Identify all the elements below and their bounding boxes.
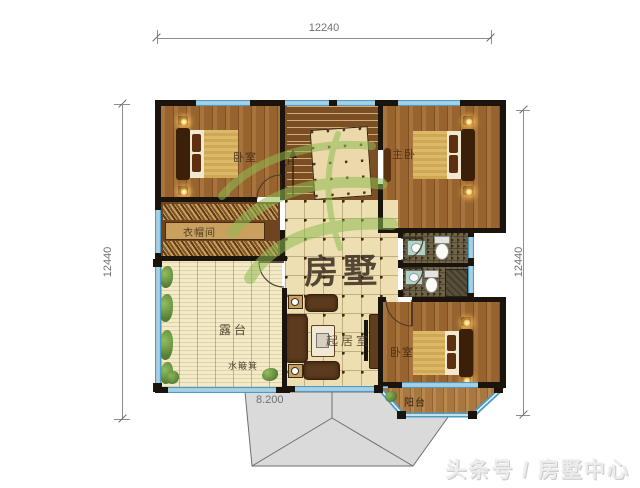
floor-plan-canvas: 12240 12440 12440 8.200 — [0, 0, 640, 488]
outer-wall-left — [155, 100, 161, 210]
dim-line-top — [157, 38, 491, 39]
label-bedroom-tl: 卧室 — [233, 149, 257, 165]
stair-landing — [310, 126, 373, 200]
shower-stall — [445, 269, 468, 297]
toilet-bowl — [425, 277, 438, 293]
dim-top-value: 12240 — [157, 22, 491, 34]
cloakroom-rack-bottom — [163, 241, 278, 256]
outer-wall-right-lower — [500, 297, 506, 388]
wall-bath-divider — [398, 263, 474, 267]
wall-bedroom-tl-bottom — [155, 197, 257, 202]
window-terrace-left — [155, 263, 161, 385]
bed-pillow — [449, 155, 458, 173]
label-water-drain: 水簸箕 — [228, 359, 258, 372]
label-cloakroom: 衣帽间 — [183, 224, 216, 239]
bed-headboard — [176, 128, 190, 180]
watermark-footer: 头条号 / 房墅中心 — [445, 454, 630, 484]
wall-bath-left — [398, 233, 403, 238]
corner-post — [397, 411, 406, 419]
dim-right-value: 12440 — [513, 232, 525, 292]
wall-bath-left — [398, 290, 403, 297]
toilet-bowl — [435, 243, 449, 260]
window-bath-1 — [468, 237, 474, 258]
corner-post — [494, 385, 503, 393]
window-bedroom-br-bottom — [402, 382, 478, 388]
bed-duvet — [413, 331, 445, 375]
armchair — [305, 294, 338, 312]
wall-bedroom-tl-stair — [280, 100, 285, 200]
corner-post — [468, 411, 477, 419]
stair-up-label: 上 — [283, 158, 294, 167]
lamp-glow — [463, 319, 471, 327]
dim-left-value: 12440 — [102, 232, 114, 292]
window-bedroom-tl — [196, 100, 250, 106]
sofa — [284, 314, 308, 363]
label-living-room: 起居室 — [326, 332, 371, 349]
cloakroom-rack-top — [163, 204, 278, 220]
window-stairwell — [285, 100, 329, 106]
stair-lower-flight — [287, 144, 313, 198]
wall-bedroom-br-top — [412, 297, 506, 302]
lamp-glow — [180, 188, 188, 196]
table-lamp — [291, 298, 299, 306]
label-terrace: 露台 — [219, 321, 249, 338]
corner-post — [153, 259, 162, 267]
window-bath-2 — [468, 266, 474, 293]
bed-pillow — [449, 135, 458, 153]
wall-stair-master — [378, 100, 383, 150]
window-cloakroom — [155, 210, 161, 253]
corner-post — [374, 385, 383, 393]
master-door-leaf — [384, 148, 391, 182]
bed-pillow — [192, 154, 201, 172]
corner-post — [153, 383, 162, 392]
bed-duvet — [413, 131, 447, 179]
lamp-glow — [465, 188, 473, 196]
window-master — [398, 100, 460, 106]
window-mullion — [329, 100, 337, 106]
wall-stair-master — [378, 184, 383, 233]
roof-level-value: 8.200 — [256, 394, 284, 406]
outer-wall-right-upper — [500, 100, 506, 233]
bed-headboard — [459, 329, 473, 377]
table-lamp — [291, 367, 299, 375]
wall-living-bedroom-br — [378, 302, 383, 382]
window-terrace-bottom — [168, 387, 276, 393]
wall-cloakroom-right — [280, 230, 285, 258]
armchair — [303, 361, 340, 380]
wall-cloakroom-bottom — [155, 256, 287, 261]
dim-line-left — [122, 104, 123, 419]
watermark-brand-text: 房墅 — [304, 243, 383, 293]
lamp-glow — [180, 118, 188, 126]
bed-pillow — [447, 335, 456, 351]
bed-pillow — [447, 353, 456, 369]
wall-living-bottom — [285, 386, 295, 392]
lamp-glow — [465, 118, 473, 126]
wall-hall-terrace — [282, 288, 287, 393]
sink-basin — [411, 243, 422, 253]
label-bedroom-br: 卧室 — [390, 344, 414, 360]
bed-pillow — [192, 134, 201, 152]
window-stairwell — [337, 100, 375, 106]
label-master-bedroom: 主卧 — [392, 146, 416, 162]
label-balcony: 阳台 — [404, 394, 426, 409]
sink-basin — [409, 273, 419, 282]
wall-bath-right — [468, 258, 474, 266]
bed-headboard — [461, 129, 475, 181]
